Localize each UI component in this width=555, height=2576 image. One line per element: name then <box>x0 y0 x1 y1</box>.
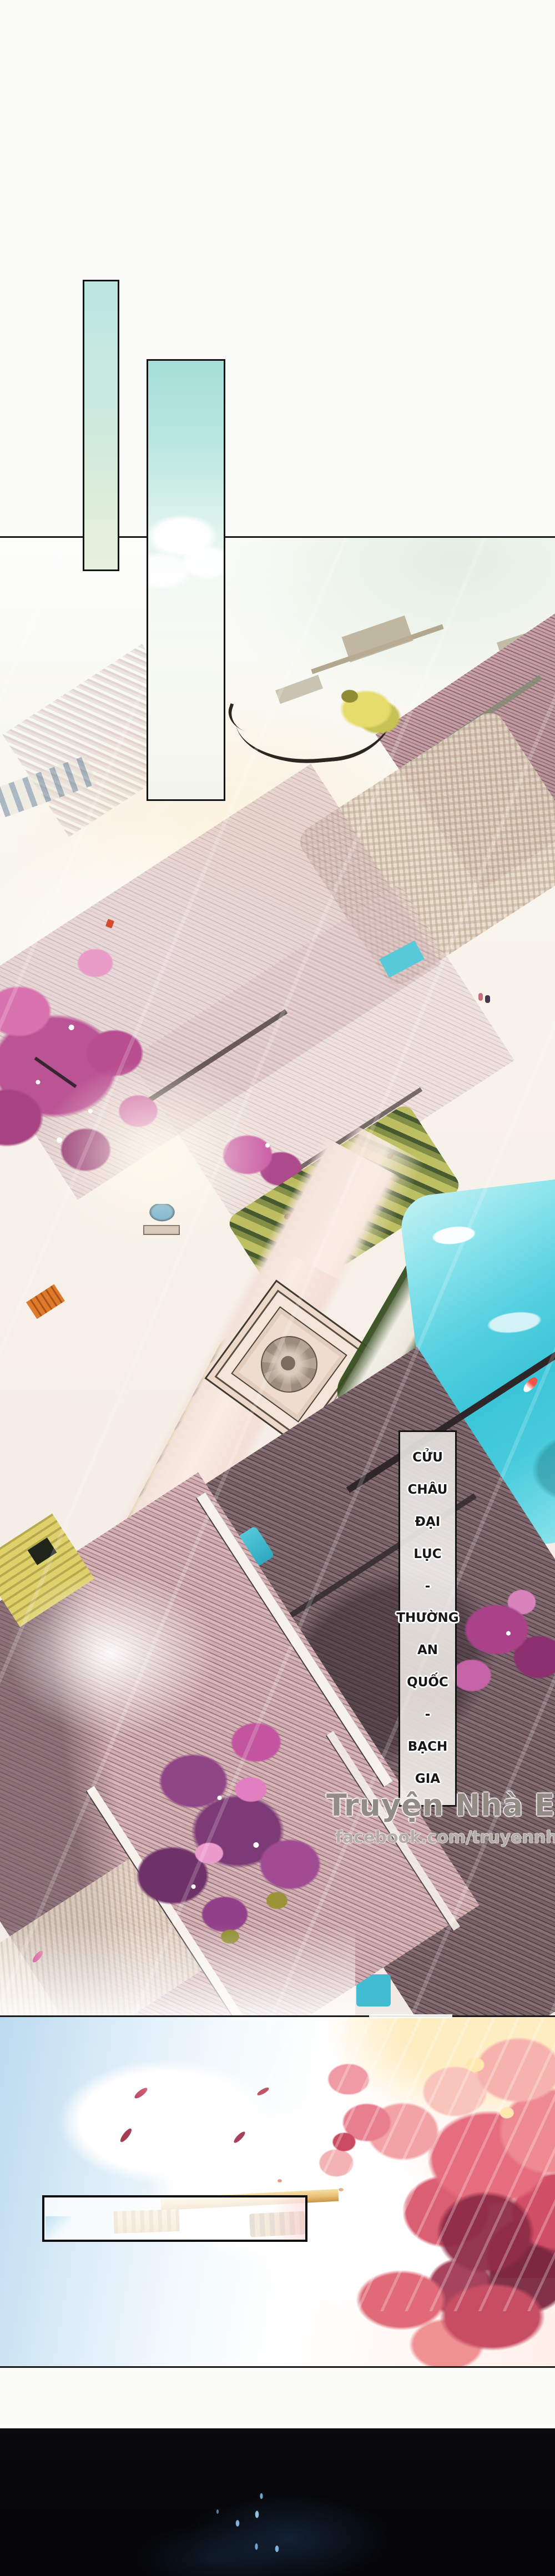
caption-line: GIA <box>415 1773 440 1786</box>
petal <box>339 2188 344 2191</box>
blue-water-pot <box>149 1204 175 1227</box>
caption-line: - <box>425 1708 431 1721</box>
caption-line: AN <box>417 1644 438 1657</box>
petal <box>256 2086 270 2097</box>
blue-corner-hint <box>46 2216 71 2239</box>
sky-panel <box>0 2017 555 2366</box>
tiny-figure <box>485 995 490 1003</box>
pink-edge-hint <box>272 2197 305 2240</box>
caption-line: LỤC <box>413 1548 441 1561</box>
caption-line: CHÂU <box>408 1484 448 1496</box>
caption-line: CỬU <box>412 1451 443 1464</box>
orange-awning <box>26 1284 65 1319</box>
speech-bubble-tall-1 <box>83 280 119 571</box>
purple-blossom-tree <box>94 1692 355 1970</box>
speech-bubble-tall-2 <box>147 359 225 801</box>
petal <box>233 2130 246 2144</box>
night-strip <box>0 2428 555 2576</box>
petal <box>119 2127 133 2144</box>
foliage-bottom-band <box>333 2256 555 2366</box>
pink-blossom-tree <box>0 899 186 1221</box>
watermark-title: Truyện Nhà Eimi <box>326 1788 555 1823</box>
yellow-foliage <box>325 677 408 742</box>
dark-flower-cluster <box>325 2125 364 2159</box>
empty-caption-box <box>42 2195 307 2242</box>
petal <box>277 2179 282 2182</box>
location-caption-box: CỬU CHÂU ĐẠI LỤC - THƯỜNG AN QUỐC - BẠCH… <box>398 1430 457 1807</box>
main-illustration-panel: CỬU CHÂU ĐẠI LỤC - THƯỜNG AN QUỐC - BẠCH… <box>0 538 555 2015</box>
panel-border-middle <box>0 2015 555 2017</box>
medallion-center <box>281 1356 295 1370</box>
caption-line: - <box>425 1580 431 1593</box>
watermark-url: facebook.com/truyennhaeimi <box>335 1828 555 1847</box>
foliage-left-clusters <box>300 2050 422 2195</box>
caption-line: BẠCH <box>408 1741 447 1753</box>
tiny-figure <box>478 993 483 1001</box>
sunwash-gap <box>369 2014 452 2018</box>
caption-line: THƯỜNG <box>396 1612 458 1625</box>
caption-line: QUỐC <box>407 1676 448 1689</box>
comic-page: CỬU CHÂU ĐẠI LỤC - THƯỜNG AN QUỐC - BẠCH… <box>0 0 555 2576</box>
petal <box>133 2086 149 2100</box>
distant-pavilion-silhouette <box>341 616 413 662</box>
panel-border-bottom <box>0 2366 555 2368</box>
caption-line: ĐẠI <box>415 1516 441 1529</box>
